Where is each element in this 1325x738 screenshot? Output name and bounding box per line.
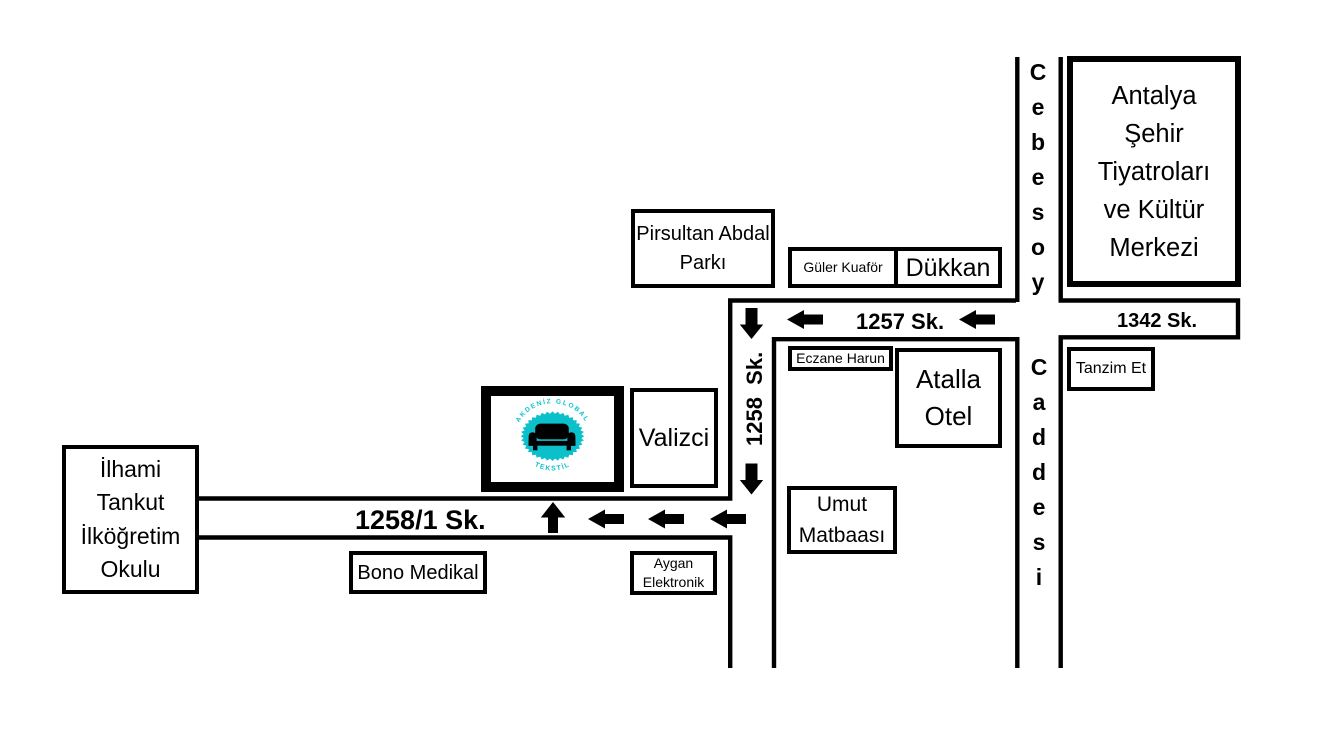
svg-text:TEKSTİL: TEKSTİL xyxy=(534,461,572,472)
